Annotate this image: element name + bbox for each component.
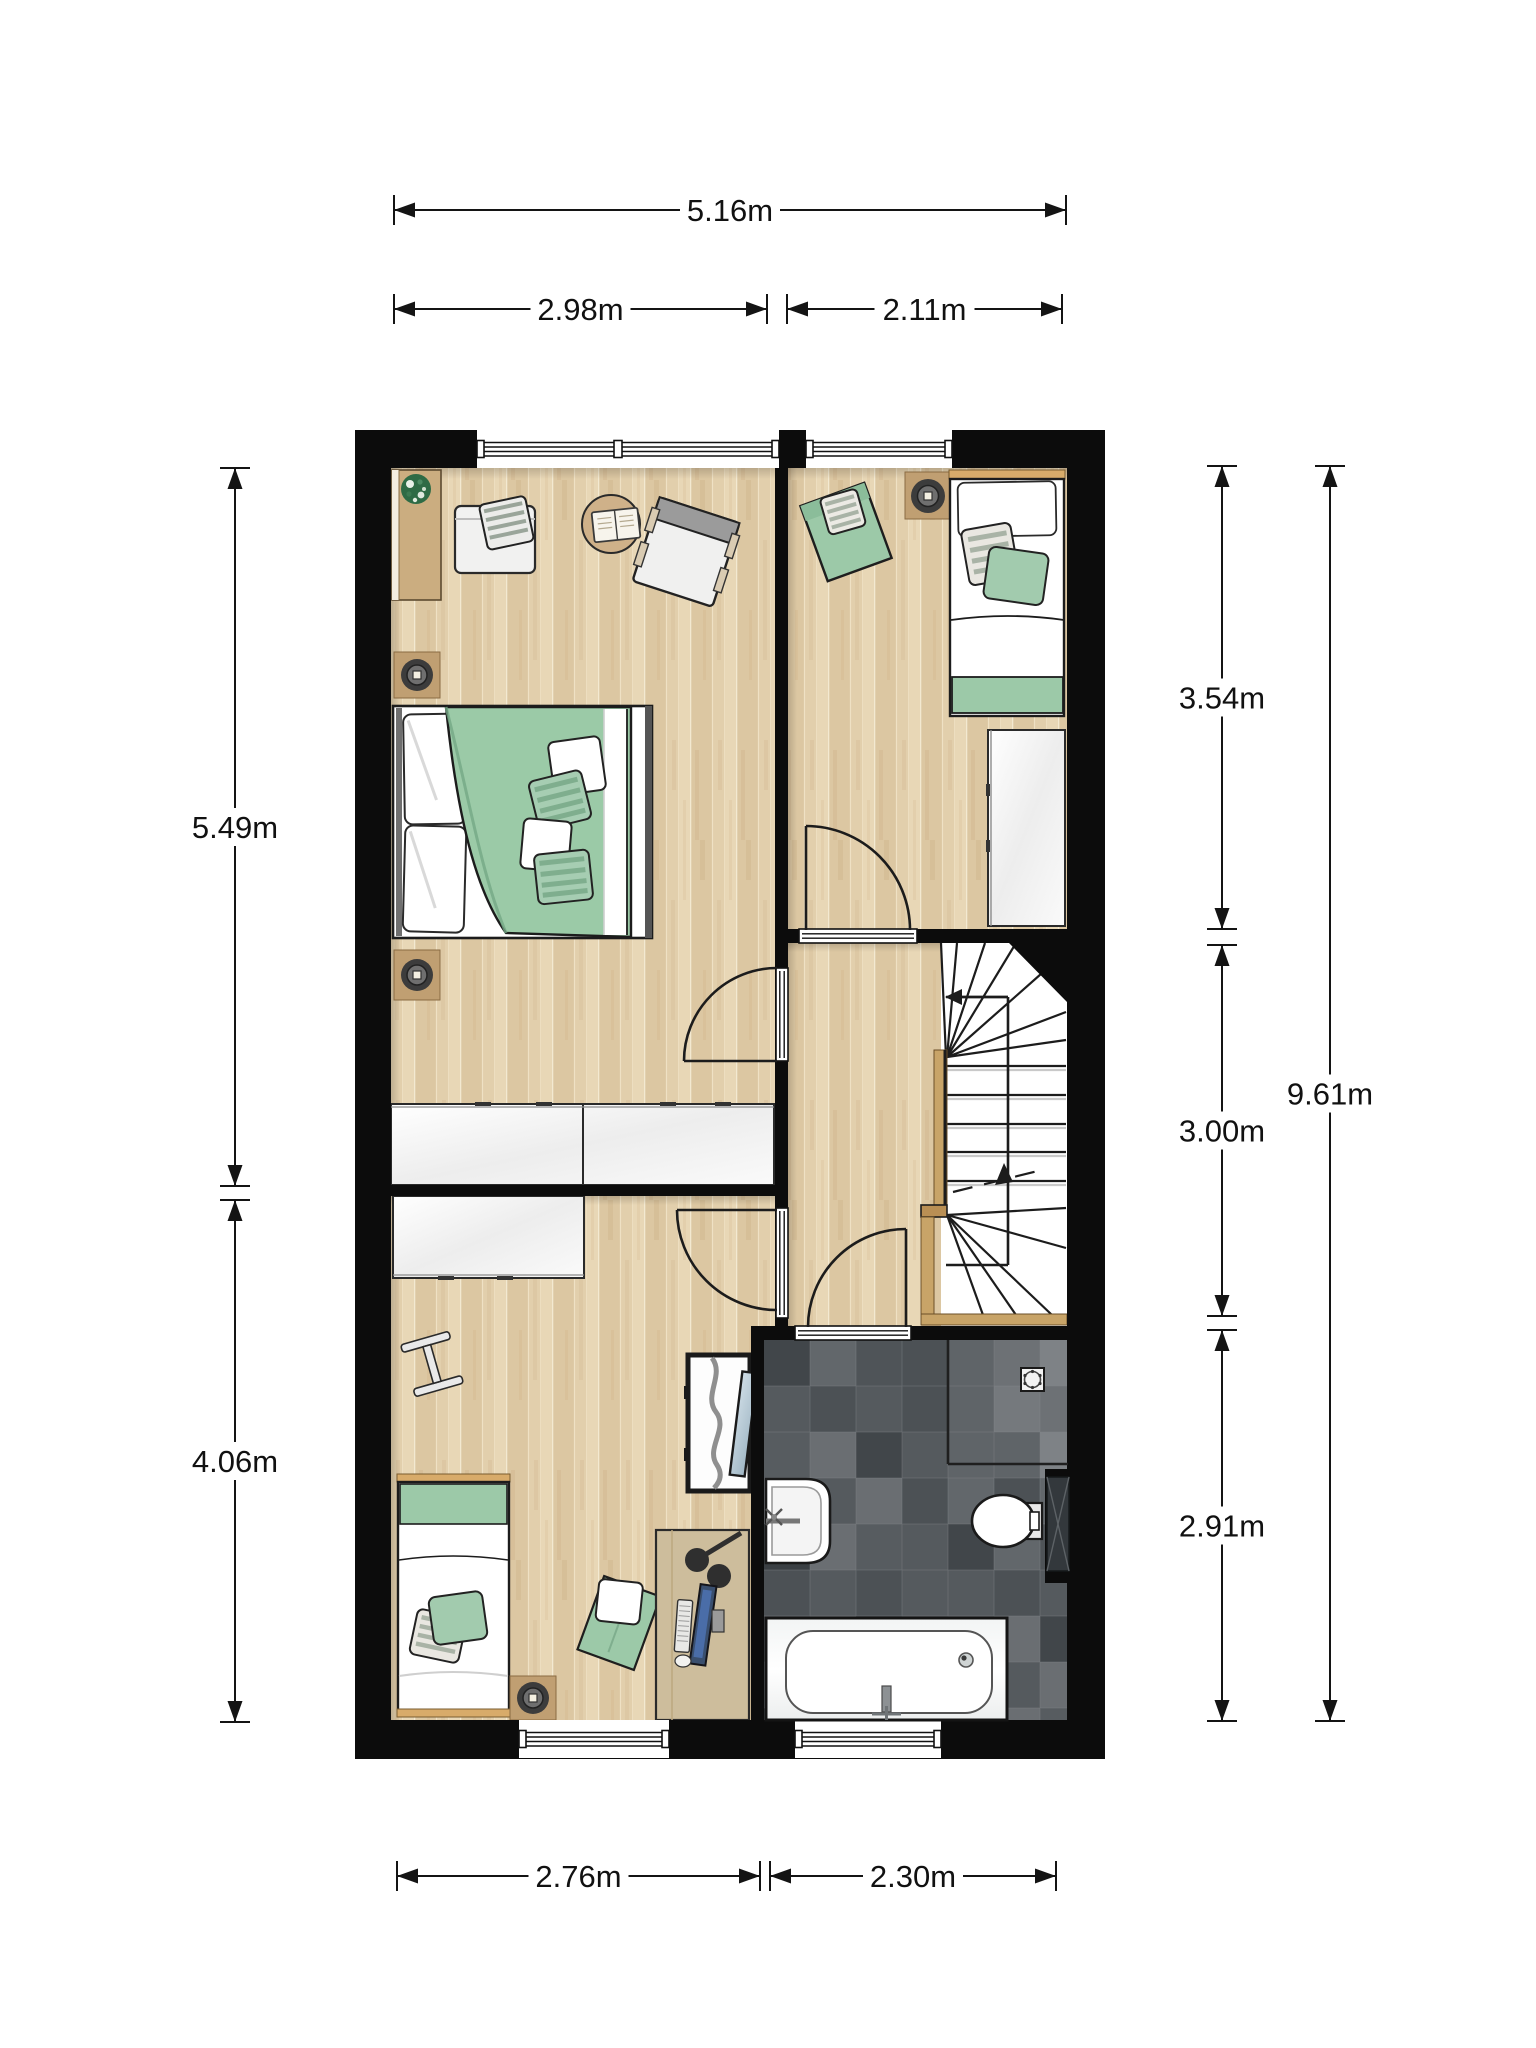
svg-text:2.11m: 2.11m: [883, 292, 967, 327]
svg-text:3.54m: 3.54m: [1179, 681, 1265, 716]
svg-text:5.49m: 5.49m: [192, 810, 278, 845]
svg-text:2.30m: 2.30m: [870, 1859, 956, 1894]
svg-text:2.76m: 2.76m: [535, 1859, 621, 1894]
svg-text:2.98m: 2.98m: [537, 292, 623, 327]
svg-text:5.16m: 5.16m: [687, 193, 773, 228]
svg-text:3.00m: 3.00m: [1179, 1114, 1265, 1149]
svg-text:4.06m: 4.06m: [192, 1444, 278, 1479]
svg-text:2.91m: 2.91m: [1179, 1509, 1265, 1544]
svg-text:9.61m: 9.61m: [1287, 1077, 1373, 1112]
